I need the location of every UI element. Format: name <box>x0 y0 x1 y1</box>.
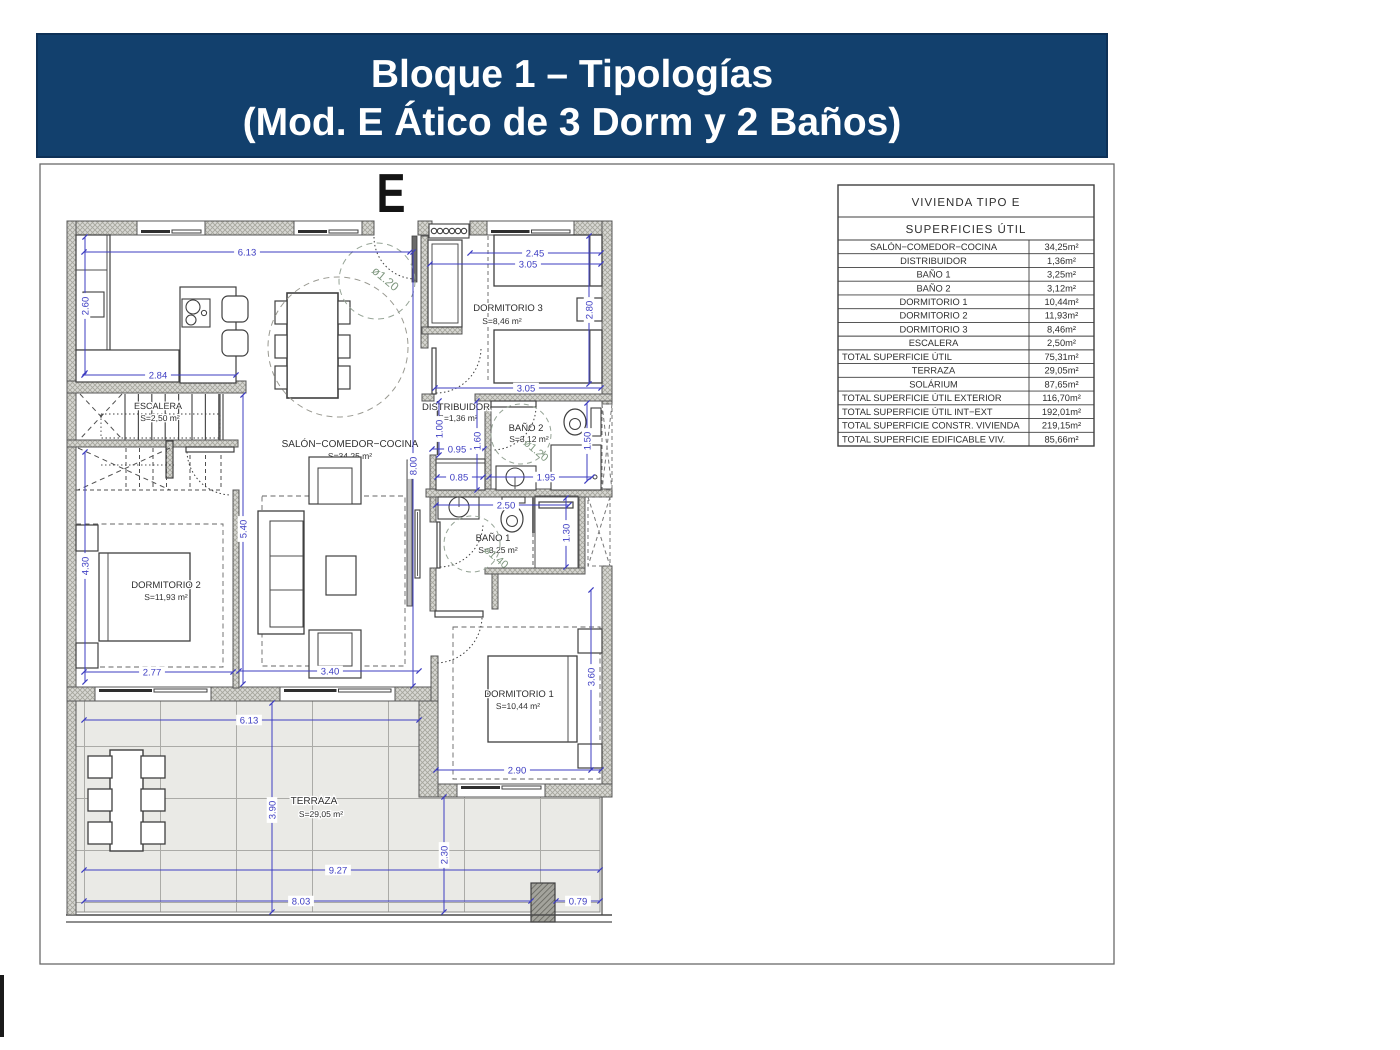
svg-text:11,93m²: 11,93m² <box>1045 311 1078 321</box>
svg-text:2.90: 2.90 <box>508 765 527 776</box>
svg-text:DORMITORIO 1: DORMITORIO 1 <box>899 297 967 307</box>
svg-text:5.40: 5.40 <box>238 520 249 539</box>
svg-text:1.00: 1.00 <box>434 420 445 439</box>
svg-text:3.60: 3.60 <box>586 668 597 687</box>
svg-text:1.60: 1.60 <box>472 432 483 451</box>
svg-text:SOLÁRIUM: SOLÁRIUM <box>909 378 958 389</box>
svg-text:VIVIENDA TIPO E: VIVIENDA TIPO E <box>912 197 1021 209</box>
svg-text:TOTAL SUPERFICIE ÚTIL INT−E: TOTAL SUPERFICIE ÚTIL INT−EXT <box>842 406 993 417</box>
svg-text:TOTAL SUPERFICIE CONSTR. VI: TOTAL SUPERFICIE CONSTR. VIVIENDA <box>842 421 1020 431</box>
svg-text:8,46m²: 8,46m² <box>1047 324 1076 334</box>
svg-text:S=10,44 m²: S=10,44 m² <box>496 701 540 711</box>
svg-text:S=2,50 m²: S=2,50 m² <box>140 413 180 423</box>
svg-text:8.03: 8.03 <box>292 896 311 907</box>
svg-text:Bloque 1 – Tipologías: Bloque 1 – Tipologías <box>371 53 773 96</box>
svg-text:2.84: 2.84 <box>149 370 168 381</box>
svg-text:DORMITORIO 3: DORMITORIO 3 <box>473 303 543 314</box>
svg-text:6.13: 6.13 <box>240 715 259 726</box>
svg-text:9.27: 9.27 <box>329 865 348 876</box>
svg-text:116,70m²: 116,70m² <box>1042 393 1081 403</box>
svg-text:10,44m²: 10,44m² <box>1044 297 1078 307</box>
svg-text:2.30: 2.30 <box>439 846 450 865</box>
svg-text:DORMITORIO 2: DORMITORIO 2 <box>899 311 967 321</box>
svg-text:S=8,46 m²: S=8,46 m² <box>482 316 522 326</box>
svg-text:BAÑO 2: BAÑO 2 <box>509 422 544 434</box>
svg-text:0.79: 0.79 <box>569 896 588 907</box>
svg-text:0.95: 0.95 <box>448 444 467 455</box>
svg-text:SUPERFICIES ÚTIL: SUPERFICIES ÚTIL <box>906 223 1027 236</box>
svg-text:75,31m²: 75,31m² <box>1044 352 1078 362</box>
svg-text:192,01m²: 192,01m² <box>1042 407 1081 417</box>
svg-text:DORMITORIO 2: DORMITORIO 2 <box>131 580 201 591</box>
svg-text:2.60: 2.60 <box>80 297 91 316</box>
svg-text:TERRAZA: TERRAZA <box>291 796 338 807</box>
svg-text:S=29,05 m²: S=29,05 m² <box>299 809 343 819</box>
svg-text:DORMITORIO 3: DORMITORIO 3 <box>899 324 967 334</box>
svg-text:ESCALERA: ESCALERA <box>134 401 182 411</box>
svg-text:BAÑO 2: BAÑO 2 <box>916 282 950 293</box>
svg-text:DISTRIBUIDOR: DISTRIBUIDOR <box>422 402 490 413</box>
svg-text:3.90: 3.90 <box>267 801 278 820</box>
svg-text:87,65m²: 87,65m² <box>1044 379 1078 389</box>
svg-text:85,66m²: 85,66m² <box>1044 434 1078 444</box>
svg-text:3.05: 3.05 <box>517 383 536 394</box>
svg-text:1.30: 1.30 <box>561 524 572 543</box>
svg-text:29,05m²: 29,05m² <box>1044 366 1078 376</box>
svg-text:219,15m²: 219,15m² <box>1042 421 1081 431</box>
svg-text:6.13: 6.13 <box>238 247 257 258</box>
svg-text:TERRAZA: TERRAZA <box>912 366 956 376</box>
svg-text:3,25m²: 3,25m² <box>1047 270 1076 280</box>
svg-text:1.95: 1.95 <box>537 472 556 483</box>
svg-text:1,36m²: 1,36m² <box>1047 256 1076 266</box>
svg-text:S=11,93 m²: S=11,93 m² <box>144 592 188 602</box>
svg-text:1.50: 1.50 <box>582 432 593 451</box>
svg-text:4.30: 4.30 <box>80 557 91 576</box>
svg-text:(Mod. E Ático de 3 Dorm y 2 Ba: (Mod. E Ático de 3 Dorm y 2 Baños) <box>243 100 902 144</box>
svg-text:0.85: 0.85 <box>450 472 469 483</box>
svg-text:2.77: 2.77 <box>143 667 162 678</box>
svg-text:3.40: 3.40 <box>321 666 340 677</box>
svg-text:BAÑO 1: BAÑO 1 <box>916 269 950 280</box>
svg-text:3.05: 3.05 <box>519 259 538 270</box>
svg-text:2.50: 2.50 <box>497 500 516 511</box>
svg-text:DORMITORIO 1: DORMITORIO 1 <box>484 689 554 700</box>
svg-text:TOTAL SUPERFICIE ÚTIL EXTER: TOTAL SUPERFICIE ÚTIL EXTERIOR <box>842 392 1002 403</box>
svg-text:TOTAL SUPERFICIE EDIFICABLE: TOTAL SUPERFICIE EDIFICABLE VIV. <box>842 434 1005 444</box>
svg-text:2.45: 2.45 <box>526 248 545 259</box>
svg-text:SALÓN−COMEDOR−COCINA: SALÓN−COMEDOR−COCINA <box>870 241 998 252</box>
svg-text:DISTRIBUIDOR: DISTRIBUIDOR <box>900 256 967 266</box>
svg-text:2,50m²: 2,50m² <box>1047 338 1076 348</box>
svg-text:E: E <box>377 162 406 224</box>
svg-text:8.00: 8.00 <box>408 457 419 476</box>
svg-text:TOTAL SUPERFICIE ÚTIL: TOTAL SUPERFICIE ÚTIL <box>842 351 952 362</box>
svg-text:SALÓN−COMEDOR−COCINA: SALÓN−COMEDOR−COCINA <box>282 438 419 450</box>
svg-text:3,12m²: 3,12m² <box>1047 283 1076 293</box>
svg-text:2.80: 2.80 <box>584 301 595 320</box>
svg-text:ESCALERA: ESCALERA <box>909 338 959 348</box>
svg-text:34,25m²: 34,25m² <box>1044 242 1078 252</box>
